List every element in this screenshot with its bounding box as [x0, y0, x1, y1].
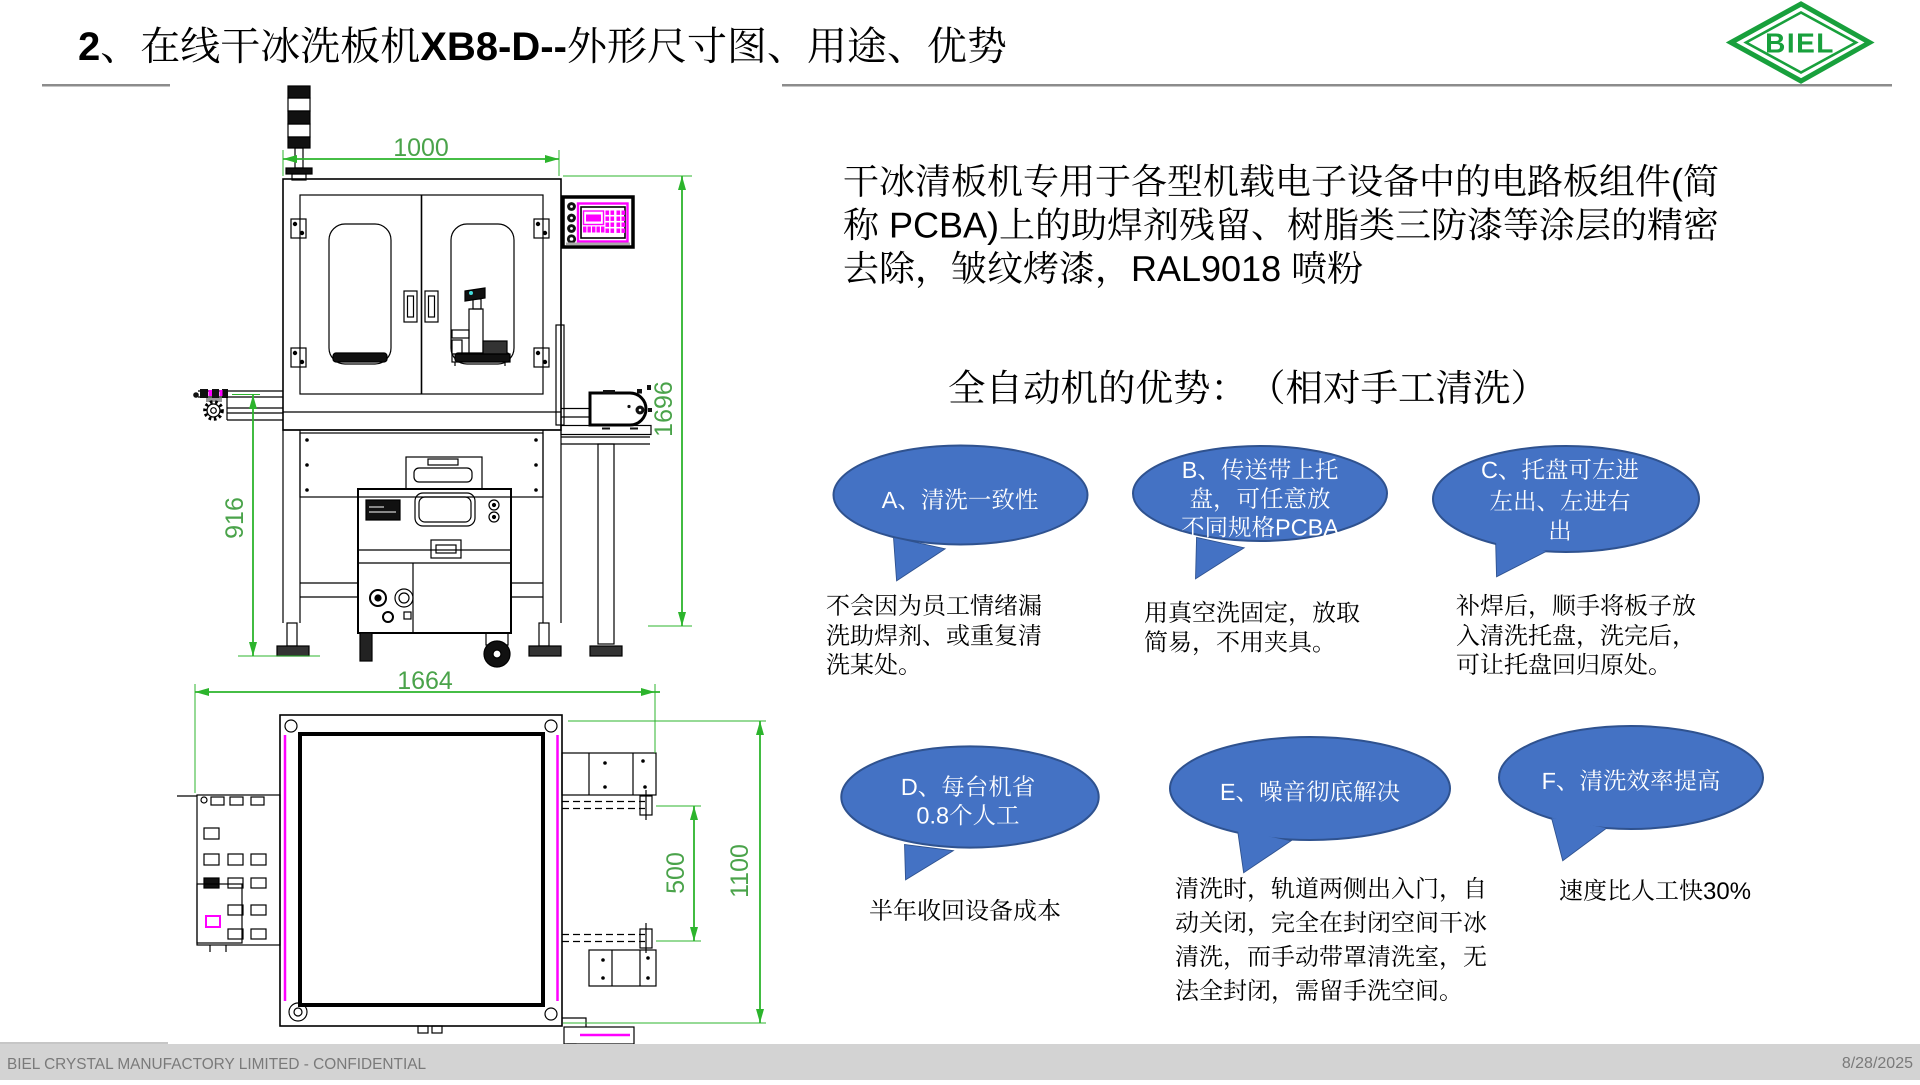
svg-text:BIEL CRYSTAL MANUFACTORY LIMIT: BIEL CRYSTAL MANUFACTORY LIMITED - CONFI… [7, 1056, 426, 1073]
svg-text:916: 916 [221, 497, 249, 539]
svg-text:1664: 1664 [397, 667, 453, 695]
svg-text:500: 500 [662, 852, 690, 894]
svg-text:1000: 1000 [393, 134, 449, 162]
svg-text:1100: 1100 [726, 844, 754, 898]
svg-text:BIEL: BIEL [1765, 28, 1835, 59]
svg-text:1696: 1696 [650, 381, 678, 437]
svg-text:8/28/2025: 8/28/2025 [1842, 1055, 1913, 1072]
